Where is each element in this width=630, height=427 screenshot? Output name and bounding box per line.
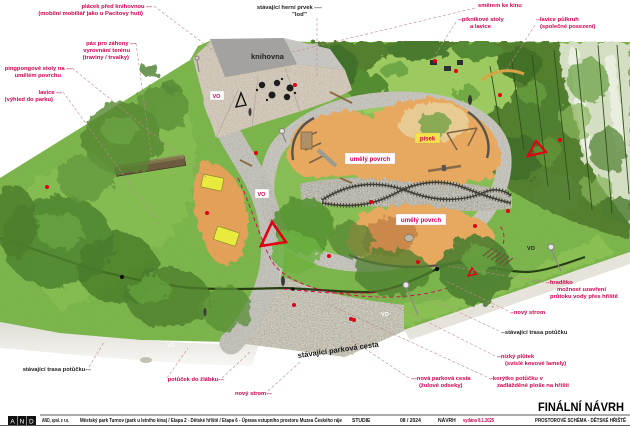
svg-text:AND, spol. s r.o.: AND, spol. s r.o. [42,418,69,424]
svg-text:(výhled do parku): (výhled do parku) [5,97,53,103]
svg-text:---nová parková cesta: ---nová parková cesta [411,376,471,382]
svg-text:možnost uzavření: možnost uzavření [557,287,606,293]
svg-text:--stávající trasa potůčku: --stávající trasa potůčku [501,329,568,336]
svg-text:FINÁLNÍ NÁVRH: FINÁLNÍ NÁVRH [538,400,624,414]
svg-text:STUDIE: STUDIE [352,418,371,424]
svg-text:--nový strom: --nový strom [510,310,545,316]
svg-text:VO: VO [167,343,176,349]
svg-text:NÁVRH: NÁVRH [438,417,456,424]
svg-text:Městský park Turnov (park u le: Městský park Turnov (park u letního kina… [80,417,342,424]
svg-text:VO: VO [258,192,267,198]
svg-text:N: N [20,418,25,425]
svg-text:knihovna: knihovna [251,52,285,61]
svg-text:08 / 2024: 08 / 2024 [400,418,421,424]
svg-text:směrem ke kinu: směrem ke kinu [478,3,522,9]
svg-text:--piknikové stoly: --piknikové stoly [458,17,505,23]
svg-text:VO: VO [381,312,390,318]
svg-text:--lavice půlkruh: --lavice půlkruh [536,16,579,23]
svg-text:vyrovnání terénu: vyrovnání terénu [83,48,130,54]
svg-text:nový strom---: nový strom--- [235,391,272,397]
svg-text:zadlážděné ploše na hřišti: zadlážděné ploše na hřišti [497,383,569,389]
svg-text:(svislé kovové lamely): (svislé kovové lamely) [505,361,566,367]
svg-text:(traviny / trvalky): (traviny / trvalky) [83,55,129,61]
svg-text:plácek před knihovnou ---: plácek před knihovnou --- [81,4,152,10]
svg-text:pingpongové stoly na ---: pingpongové stoly na --- [5,66,72,72]
svg-text:(společné posezení): (společné posezení) [540,24,595,30]
svg-text:stávající herní prvek ----: stávající herní prvek ---- [257,5,322,11]
svg-text:umělý povrch: umělý povrch [401,217,441,224]
svg-text:VO: VO [213,94,222,100]
svg-text:a lavice: a lavice [470,24,492,30]
svg-text:PROSTOROVÉ SCHÉMA - DĚTSKÉ HŘI: PROSTOROVÉ SCHÉMA - DĚTSKÉ HŘIŠTĚ [535,416,627,424]
svg-text:VO: VO [527,246,536,252]
svg-text:A: A [10,418,15,425]
svg-text:D: D [29,418,34,425]
svg-text:průtoku vody přes hřiště: průtoku vody přes hřiště [550,293,619,300]
svg-text:písek: písek [420,137,436,143]
svg-text:vydáno 8.1.2025: vydáno 8.1.2025 [463,418,494,424]
svg-text:--korýtko potůčku v: --korýtko potůčku v [489,375,544,382]
svg-text:--hradítko: --hradítko [546,280,573,286]
svg-text:potůček do žlábku---: potůček do žlábku--- [168,376,224,383]
svg-text:(žulové odseky): (žulové odseky) [419,383,463,389]
svg-text:--nízký plůtek: --nízký plůtek [497,353,535,360]
svg-text:lavice ---: lavice --- [38,90,62,96]
svg-text:"loď": "loď" [292,12,307,18]
svg-text:stávající trasa potůčku---: stávající trasa potůčku--- [23,366,91,373]
svg-text:umělém povrchu: umělém povrchu [15,73,62,79]
svg-text:pás pro záhony ---: pás pro záhony --- [86,41,136,47]
svg-text:umělý povrch: umělý povrch [350,156,390,163]
svg-text:(mobilní mobiliář jako u Pacit: (mobilní mobiliář jako u Pacitovy huti) [38,11,143,17]
